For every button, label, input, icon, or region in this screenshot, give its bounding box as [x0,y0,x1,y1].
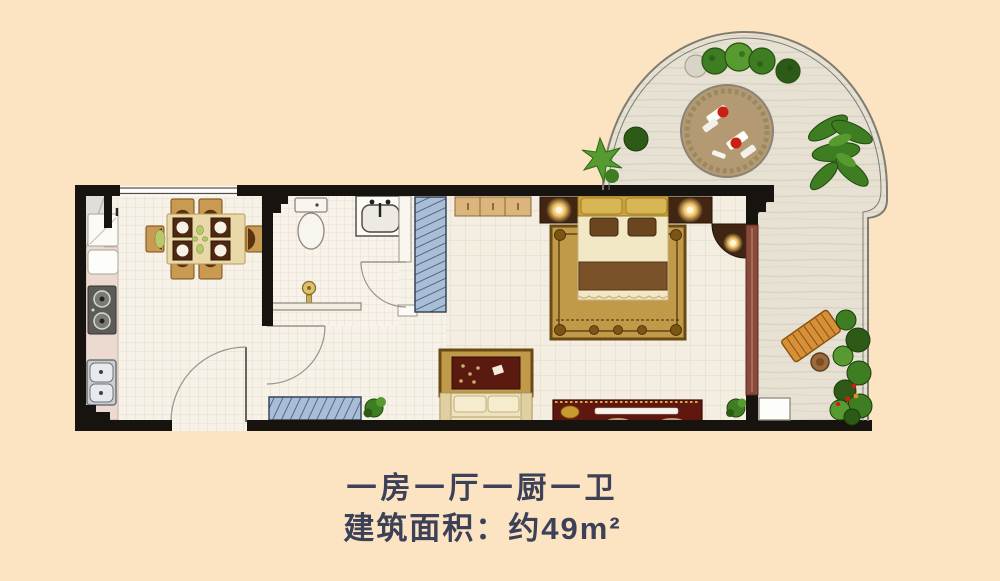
shoe-cabinet [269,397,361,420]
sofa-rug [440,350,532,396]
caption-area-line: 建筑面积：约49m² [0,509,965,549]
patio-seating-circle [681,85,773,177]
kitchen-sink [87,360,116,405]
stove [88,286,116,334]
terrace-table [811,353,829,371]
nightstand-right [668,197,712,223]
bed [578,196,668,300]
kitchen-cabinet [88,214,118,246]
nightstand-left [540,197,578,223]
bathroom-vanity-sink [356,196,405,236]
entry-opening-floor [172,420,247,431]
bath-bench [267,303,361,310]
wardrobe [455,197,531,216]
toilet [295,198,327,249]
sofa [440,393,532,423]
fridge [88,250,118,274]
floor-plan-page: 一房一厅一厨一卫 建筑面积：约49m² [0,0,1000,581]
glass-partition-panel [415,197,446,312]
caption-layout-line: 一房一厅一厨一卫 [0,469,965,509]
terrace-box [759,398,790,420]
terrace-door [746,225,758,395]
caption: 一房一厅一厨一卫 建筑面积：约49m² [0,469,965,549]
